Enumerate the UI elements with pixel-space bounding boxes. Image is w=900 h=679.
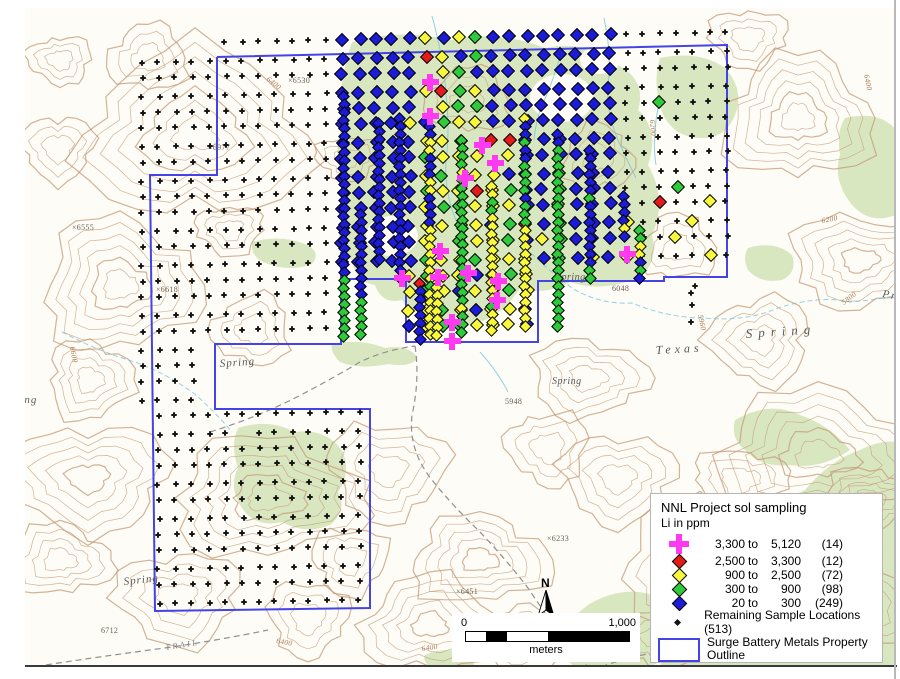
contour-elevation-label: 6200	[821, 213, 839, 225]
spot-elevation-label: 6712	[101, 626, 118, 635]
scale-end-label: 1,000	[608, 617, 636, 629]
spring-label: Spring	[219, 356, 255, 370]
legend-class-row: 300to900(98)	[651, 582, 882, 596]
spring-label: Texas	[655, 341, 703, 357]
spot-elevation-label: ×6977	[208, 143, 230, 152]
topo-map-page: SpringSpringSpringTexasSpringSpringSprin…	[0, 0, 900, 679]
contour-elevation-label: 6400	[265, 74, 283, 91]
legend-class-text: 900	[707, 568, 745, 582]
spot-elevation-label: ×6233	[547, 534, 569, 543]
scale-bar-graphic	[465, 631, 630, 642]
legend-class-text: 3,300	[761, 554, 801, 568]
spot-elevation-label: 6048	[612, 284, 629, 293]
legend-class-text: to	[745, 554, 761, 568]
contour-elevation-label: 5960	[696, 314, 708, 332]
trail-label: TRAIL	[165, 638, 200, 652]
scale-bar: 0 1,000 meters	[452, 613, 640, 662]
legend-class-text: 2,500	[761, 568, 801, 582]
map-frame-right	[894, 0, 896, 679]
contour-elevation-label: 6600	[68, 346, 80, 364]
contour-elevation-label: 6400	[862, 74, 874, 92]
scale-start-label: 0	[461, 617, 467, 629]
legend-class-text: 2,500	[707, 554, 745, 568]
diamond-icon	[671, 595, 687, 611]
spot-elevation-label: ×6530	[288, 76, 310, 85]
spring-label: Spring	[552, 376, 582, 387]
map-legend: NNL Project sol sampling Li in ppm 3,300…	[650, 493, 883, 663]
property-outline-icon	[658, 638, 700, 662]
legend-class-text: 300	[707, 582, 745, 596]
spot-elevation-label: 5948	[505, 397, 522, 406]
legend-outline-label-2: Outline	[707, 648, 745, 662]
legend-class-text: (72)	[801, 568, 843, 582]
contour-elevation-label: 5800	[840, 290, 858, 307]
map-frame-bottom	[25, 665, 897, 667]
legend-classes: 3,300to5,120(14)2,500to3,300(12)900to2,5…	[651, 534, 882, 610]
spot-elevation-label: ×6451	[456, 587, 478, 596]
legend-remaining-label: Remaining Sample Locations (513)	[704, 608, 882, 636]
spot-elevation-label: ×6555	[72, 223, 94, 232]
legend-remaining-row: Remaining Sample Locations (513)	[651, 614, 882, 630]
legend-outline-row: Surge Battery Metals Property Outline	[651, 636, 882, 662]
legend-title: NNL Project sol sampling	[661, 500, 882, 515]
legend-class-text: to	[745, 568, 761, 582]
legend-class-text: to	[745, 582, 761, 596]
legend-class-text: (12)	[801, 554, 843, 568]
legend-class-row: 3,300to5,120(14)	[651, 534, 882, 554]
spring-label: Spring	[25, 394, 37, 406]
legend-class-text: 5,120	[761, 537, 801, 551]
north-label: N	[541, 576, 550, 590]
legend-class-text: 900	[761, 582, 801, 596]
legend-class-text: to	[745, 537, 761, 551]
legend-class-row: 900to2,500(72)	[651, 568, 882, 582]
spot-elevation-label: ×6618	[156, 285, 178, 294]
legend-class-text: 3,300	[707, 537, 745, 551]
legend-outline-label-1: Surge Battery Metals Property	[707, 635, 868, 649]
black-diamond-icon	[674, 618, 681, 625]
scale-units-label: meters	[452, 644, 640, 656]
legend-class-row: 2,500to3,300(12)	[651, 554, 882, 568]
contour-elevation-label: 6400	[421, 642, 438, 653]
legend-class-text: (14)	[801, 537, 843, 551]
north-arrow: N	[538, 576, 554, 616]
magenta-cross-icon	[669, 534, 689, 554]
contour-elevation-label: 6200	[648, 119, 658, 136]
legend-subtitle: Li in ppm	[661, 516, 882, 530]
spring-label: Spring	[556, 272, 586, 283]
legend-class-text: (98)	[801, 582, 843, 596]
spring-label: Spring	[745, 321, 817, 341]
